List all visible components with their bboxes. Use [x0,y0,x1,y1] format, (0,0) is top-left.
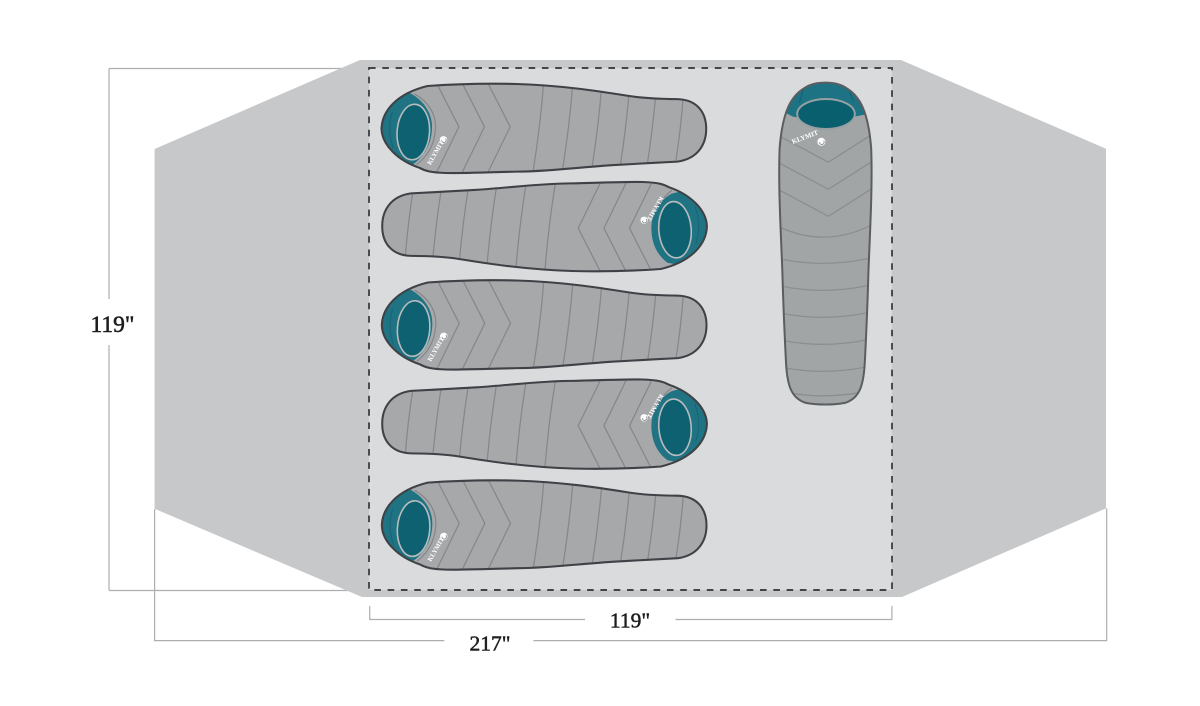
svg-text:217": 217" [469,631,510,655]
svg-text:119": 119" [610,609,650,633]
svg-text:119": 119" [91,312,135,338]
